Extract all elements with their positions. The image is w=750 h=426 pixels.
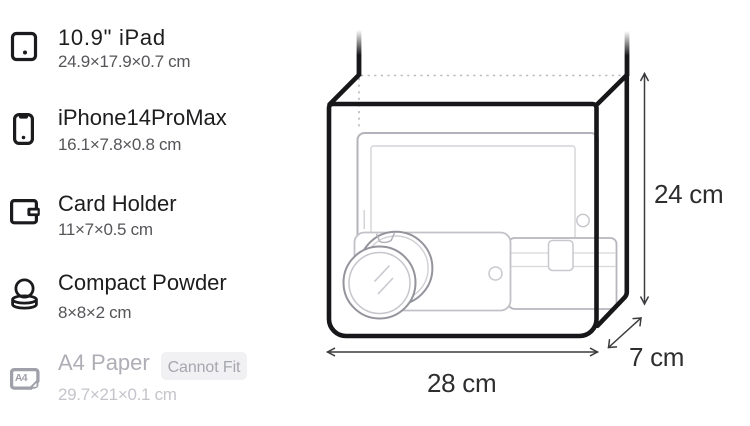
svg-text:28 cm: 28 cm <box>427 368 496 398</box>
svg-text:7 cm: 7 cm <box>629 342 684 372</box>
svg-text:24 cm: 24 cm <box>654 179 723 209</box>
